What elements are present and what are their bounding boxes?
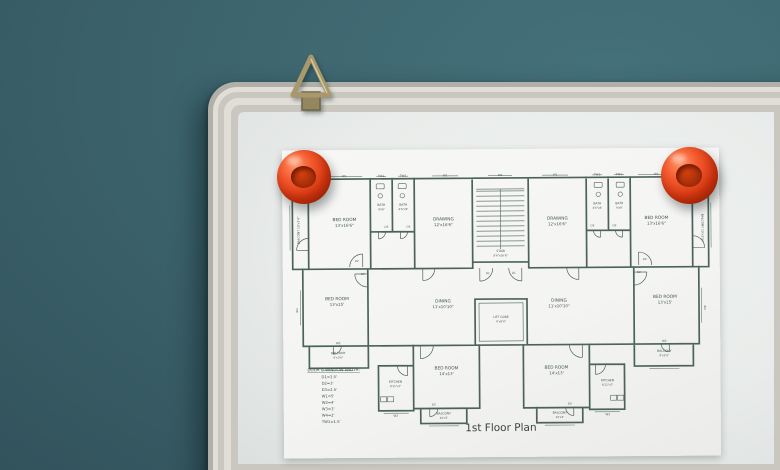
- wall-size-label: W1: [342, 174, 347, 178]
- magnet-well: [291, 166, 316, 188]
- room-dims: 12'x16'6": [548, 221, 567, 226]
- magnet-left: [277, 150, 331, 204]
- legend-item: TW1=1.5': [321, 419, 341, 424]
- legend-item: W3=3': [322, 406, 335, 411]
- plan-windows: [290, 174, 713, 427]
- magnet-shine: [671, 154, 686, 163]
- room-dims: 4'6"x8': [592, 206, 602, 210]
- wall-size-label: W1: [295, 308, 299, 313]
- wall-size-label: D2: [361, 272, 365, 276]
- room-dims: 13'x15': [658, 300, 673, 305]
- legend-item: W4=2': [322, 413, 335, 418]
- plan-stair: [476, 189, 524, 249]
- room-dims: 8'x8'8": [496, 319, 506, 323]
- magnet-right: [661, 147, 718, 204]
- room-dims: 11'x10'10": [432, 304, 454, 309]
- wall-size-label: W2: [336, 341, 341, 345]
- legend-item: W2=4': [322, 400, 335, 405]
- room-dims: 4'6"x8': [398, 207, 408, 211]
- wall-size-label: W3: [393, 414, 398, 418]
- plan-walls: [292, 177, 710, 425]
- room-dims: 13'x16'6": [647, 221, 666, 226]
- room-dims: 13'x16'6": [335, 223, 354, 228]
- wall-size-label: D1: [512, 271, 516, 275]
- room-dims: 8'x3'6": [660, 353, 670, 357]
- wall-size-label: W4: [498, 173, 503, 177]
- room-dims: 8'x3'6": [334, 356, 344, 360]
- balcony-vertical-label: BALCONY 10'x3'6": [296, 216, 300, 244]
- wall-size-label: D3: [432, 402, 436, 406]
- wall-size-label: W1: [703, 305, 707, 310]
- balcony-vertical-label: BALCONY 10'x3'6": [700, 214, 704, 242]
- hanger-bracket: [288, 50, 334, 114]
- legend-item: D1=3.5': [321, 374, 337, 379]
- room-dims: 10'x3': [556, 415, 565, 419]
- wall-size-label: W3: [605, 412, 610, 416]
- wall-size-label: D2: [355, 259, 359, 263]
- magnet-shine: [287, 156, 301, 165]
- wall-size-label: D1: [486, 271, 490, 275]
- room-dims: 10'x3': [440, 416, 449, 420]
- wall-size-label: TW1: [615, 172, 623, 176]
- room-dims: 14'x13': [439, 371, 454, 376]
- hanger-highlight: [311, 59, 327, 93]
- wall-size-label: W1: [443, 173, 448, 177]
- floorplan-paper: BED ROOM13'x16'6"BATH4'x8'BATH4'6"x8'DRA…: [282, 147, 721, 458]
- room-dims: 4'x8': [616, 206, 623, 210]
- legend-item: W1=5': [322, 393, 335, 398]
- photo-scene: BED ROOM13'x16'6"BATH4'x8'BATH4'6"x8'DRA…: [0, 0, 780, 470]
- room-dims: 8'6"x16'6": [493, 253, 507, 257]
- legend-title: DOOR & WINDOW WIDTH:: [307, 367, 359, 372]
- room-dims: 13'x15': [330, 302, 345, 307]
- room-dims: 4'x8': [378, 207, 385, 211]
- wall-size-label: W2: [662, 339, 667, 343]
- wall-size-label: TW1: [377, 174, 385, 178]
- wall-size-label: W1: [553, 173, 558, 177]
- legend-item: D2=3': [322, 381, 334, 386]
- plan-title: 1st Floor Plan: [465, 422, 536, 434]
- plan-labels: BED ROOM13'x16'6"BATH4'x8'BATH4'6"x8'DRA…: [294, 172, 708, 425]
- legend-item: D3=2.5': [322, 387, 338, 392]
- wall-size-label: D3: [406, 225, 410, 229]
- room-dims: 8'11"x7': [602, 383, 614, 387]
- wall-size-label: D2: [643, 257, 647, 261]
- wall-size-label: D3: [568, 402, 572, 406]
- room-dims: 8'11"x7': [390, 384, 402, 388]
- room-dims: 14'x13': [549, 370, 564, 375]
- hanger-triangle-ring: [293, 57, 329, 95]
- wall-size-label: W1: [654, 172, 659, 176]
- wall-size-label: D3: [384, 225, 388, 229]
- room-dims: 12'x16'6": [434, 222, 453, 227]
- floorplan-drawing: BED ROOM13'x16'6"BATH4'x8'BATH4'6"x8'DRA…: [282, 147, 721, 458]
- magnet-well: [676, 164, 702, 187]
- room-dims: 11'x10'10": [548, 303, 570, 308]
- wall-size-label: TW1: [593, 172, 601, 176]
- wall-size-label: TW1: [399, 174, 407, 178]
- wall-size-label: D3: [590, 223, 594, 227]
- wall-size-label: D3: [612, 223, 616, 227]
- wall-size-label: D2: [637, 270, 641, 274]
